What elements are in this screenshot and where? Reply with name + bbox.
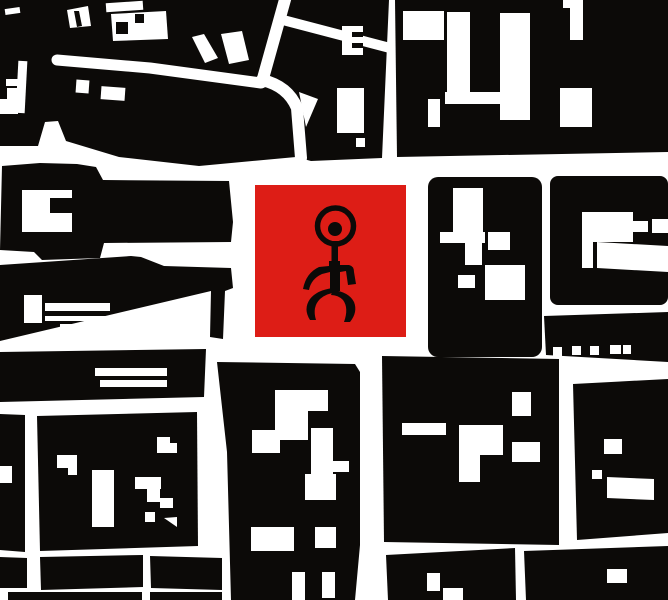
map-street-or-courtyard xyxy=(427,573,440,591)
map-street-or-courtyard xyxy=(560,88,592,127)
map-street-or-courtyard xyxy=(135,477,161,489)
map-street-or-courtyard xyxy=(333,461,349,472)
map-street-or-courtyard xyxy=(623,345,631,354)
map-street-or-courtyard xyxy=(356,138,365,147)
map-street-or-courtyard xyxy=(440,232,485,243)
map-street-or-courtyard xyxy=(311,428,333,475)
map-street-or-courtyard xyxy=(488,232,510,250)
map-street-or-courtyard xyxy=(337,88,364,133)
map-street-or-courtyard xyxy=(582,242,593,268)
map-street-or-courtyard xyxy=(275,390,328,411)
map-street-or-courtyard xyxy=(652,219,668,233)
map-street-or-courtyard xyxy=(607,477,654,500)
map-street-or-courtyard xyxy=(553,347,562,356)
map-block xyxy=(150,556,222,590)
map-block xyxy=(573,379,668,540)
map-street-or-courtyard xyxy=(145,512,155,522)
map-street-or-courtyard xyxy=(60,324,98,328)
map-block xyxy=(544,312,668,362)
map-street-or-courtyard xyxy=(453,188,483,234)
map-street-or-courtyard xyxy=(428,99,440,127)
map-block xyxy=(524,546,668,600)
map-street-or-courtyard xyxy=(45,303,110,311)
map-street-or-courtyard xyxy=(403,11,444,40)
map-street-or-courtyard xyxy=(582,212,633,242)
map-street-or-courtyard xyxy=(512,392,531,416)
map-street-or-courtyard xyxy=(92,470,114,527)
map-block xyxy=(150,592,222,600)
map-street-or-courtyard xyxy=(6,79,19,86)
map-street-or-courtyard xyxy=(0,99,18,114)
map-street-or-courtyard xyxy=(563,0,583,8)
map-street-or-courtyard xyxy=(465,243,482,265)
map-street-or-courtyard xyxy=(24,295,42,323)
map-street-or-courtyard xyxy=(402,423,446,435)
map-street-or-courtyard xyxy=(512,442,540,462)
map-block xyxy=(40,555,143,590)
map-street-or-courtyard xyxy=(101,86,126,101)
map-street-or-courtyard xyxy=(275,411,308,440)
map-street-or-courtyard xyxy=(610,345,621,354)
map-block xyxy=(37,412,198,551)
map-street-or-courtyard xyxy=(45,316,113,321)
map-street-or-courtyard xyxy=(315,527,336,548)
map-street-or-courtyard xyxy=(443,588,463,600)
symbol-center-dot xyxy=(328,222,342,236)
city-map-artwork xyxy=(0,0,668,600)
map-street-or-courtyard xyxy=(607,569,627,583)
map-street-or-courtyard xyxy=(100,380,167,387)
map-street-or-courtyard xyxy=(95,368,167,376)
map-street-or-courtyard xyxy=(251,527,294,551)
map-street-or-courtyard xyxy=(0,466,12,483)
map-street-or-courtyard xyxy=(292,572,305,600)
map-street-or-courtyard xyxy=(633,221,648,232)
map-street-or-courtyard xyxy=(592,470,602,479)
map-street-or-courtyard xyxy=(160,498,173,508)
map-street-or-courtyard xyxy=(322,572,335,598)
map-street-or-courtyard xyxy=(447,12,470,97)
map-street-or-courtyard xyxy=(76,80,90,94)
map-street-or-courtyard xyxy=(305,474,336,500)
map-block-detail xyxy=(116,22,128,34)
map-street-or-courtyard xyxy=(597,242,668,272)
map-block-detail xyxy=(352,32,363,37)
map-block-detail xyxy=(135,14,144,23)
map-street-or-courtyard xyxy=(342,26,363,55)
map-block-detail xyxy=(50,198,72,213)
map-street-or-courtyard xyxy=(570,8,583,40)
map-block xyxy=(8,592,142,600)
map-street-or-courtyard xyxy=(147,489,160,502)
map-street-or-courtyard xyxy=(604,439,622,454)
map-street-or-courtyard xyxy=(500,13,530,120)
map-street-or-courtyard xyxy=(458,275,475,288)
album-art xyxy=(0,0,668,600)
map-street-or-courtyard xyxy=(590,346,599,355)
map-block-detail xyxy=(352,43,363,48)
map-street-or-courtyard xyxy=(572,346,581,355)
map-street-or-courtyard xyxy=(485,265,525,300)
map-block xyxy=(0,557,27,588)
